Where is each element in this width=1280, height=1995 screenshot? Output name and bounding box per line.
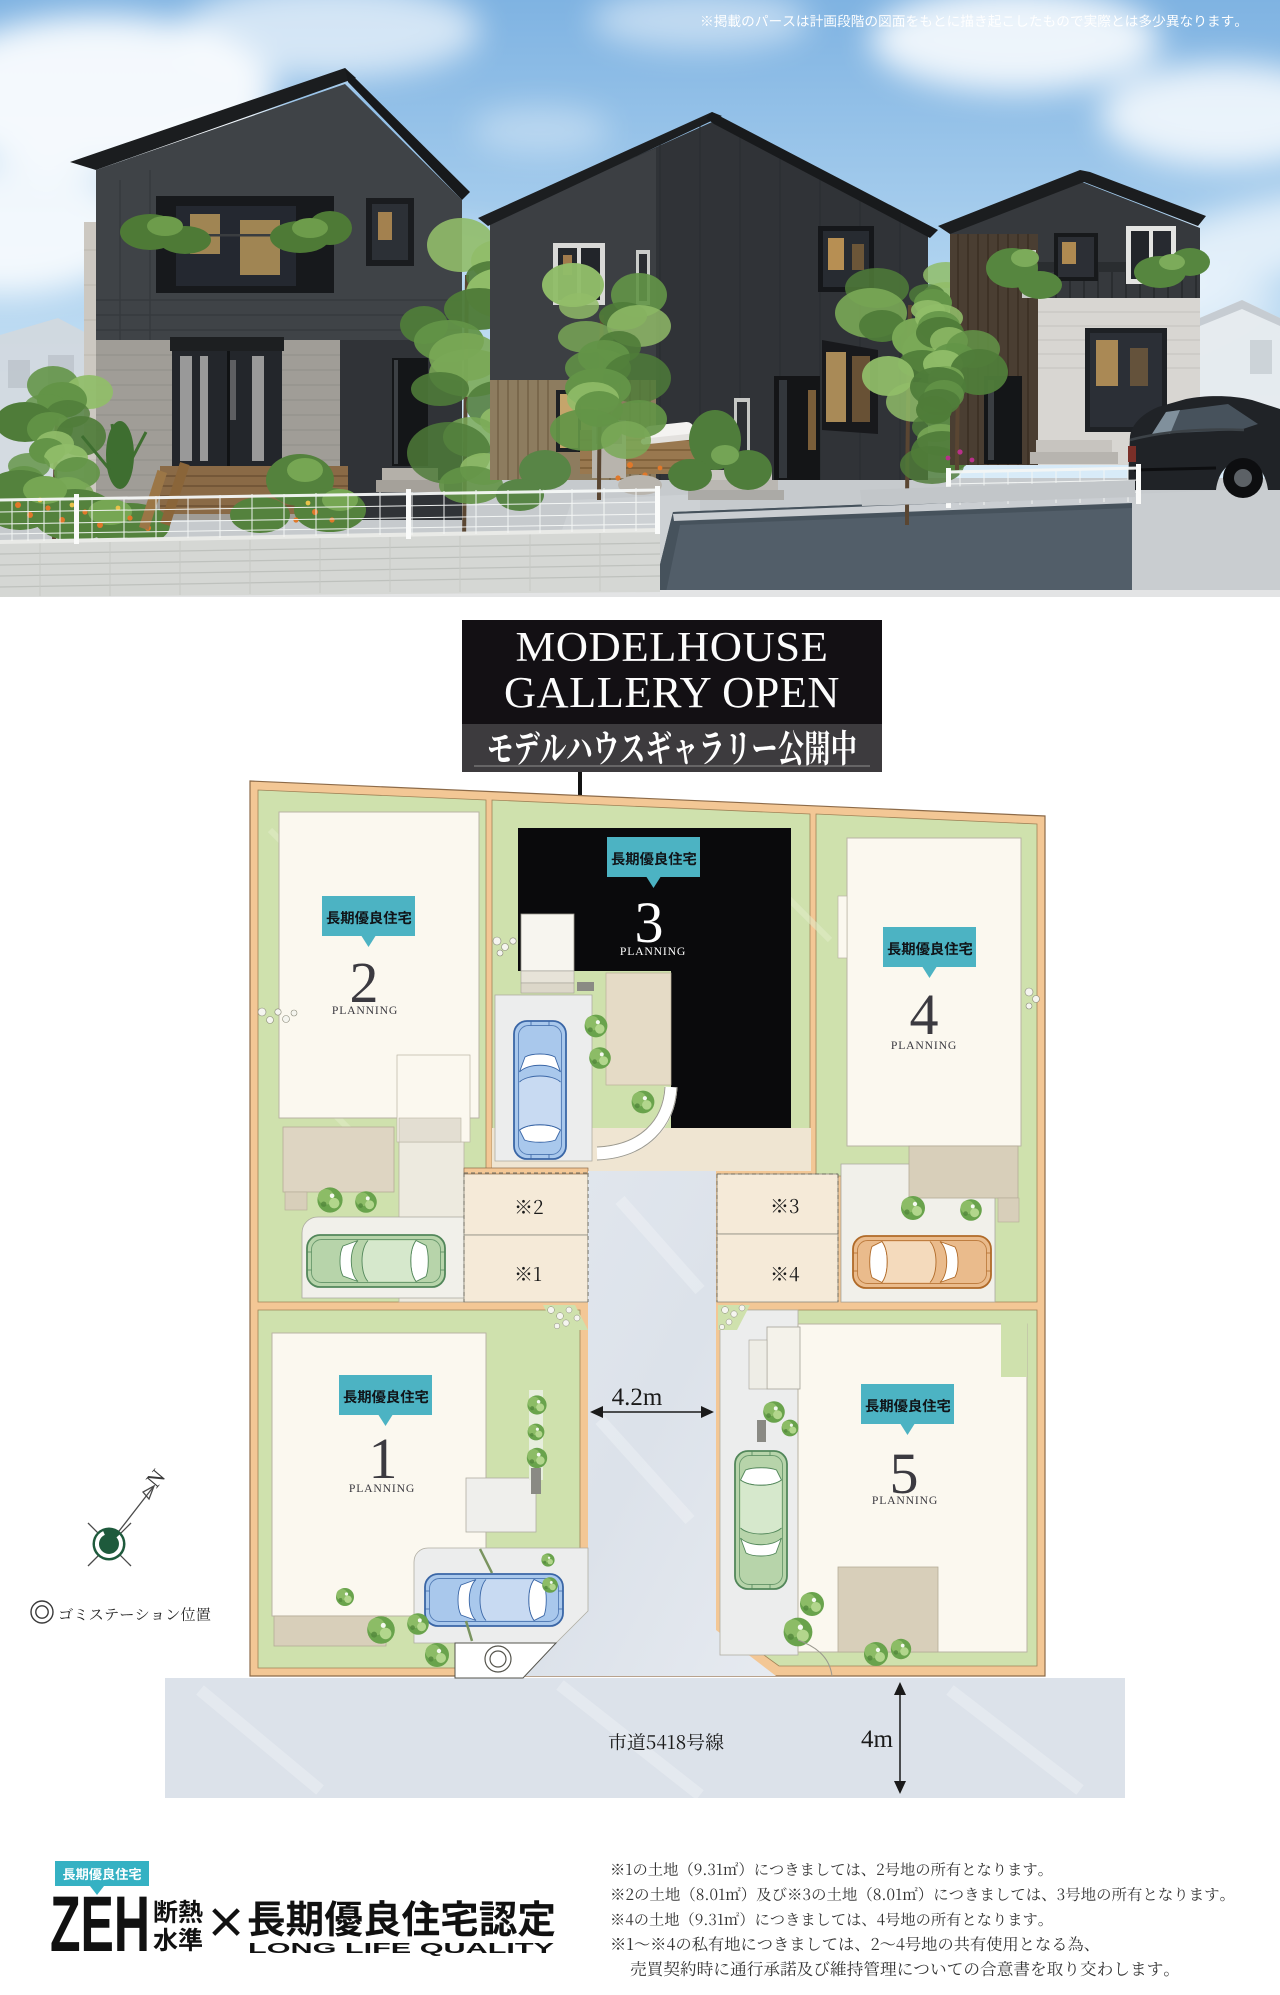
svg-text:N: N <box>141 1464 170 1492</box>
svg-text:PLANNING: PLANNING <box>349 1482 415 1495</box>
svg-text:PLANNING: PLANNING <box>332 1004 398 1017</box>
svg-text:PLANNING: PLANNING <box>872 1494 938 1507</box>
svg-text:4: 4 <box>910 982 939 1047</box>
svg-text:PLANNING: PLANNING <box>620 945 686 958</box>
svg-text:4.2m: 4.2m <box>612 1384 663 1411</box>
svg-text:ZEH: ZEH <box>50 1879 150 1968</box>
svg-text:4m: 4m <box>861 1726 894 1753</box>
svg-text:PLANNING: PLANNING <box>891 1039 957 1052</box>
svg-text:GALLERY OPEN: GALLERY OPEN <box>504 667 840 717</box>
svg-text:MODELHOUSE: MODELHOUSE <box>516 624 829 671</box>
svg-text:LONG LIFE QUALITY: LONG LIFE QUALITY <box>248 1941 555 1957</box>
